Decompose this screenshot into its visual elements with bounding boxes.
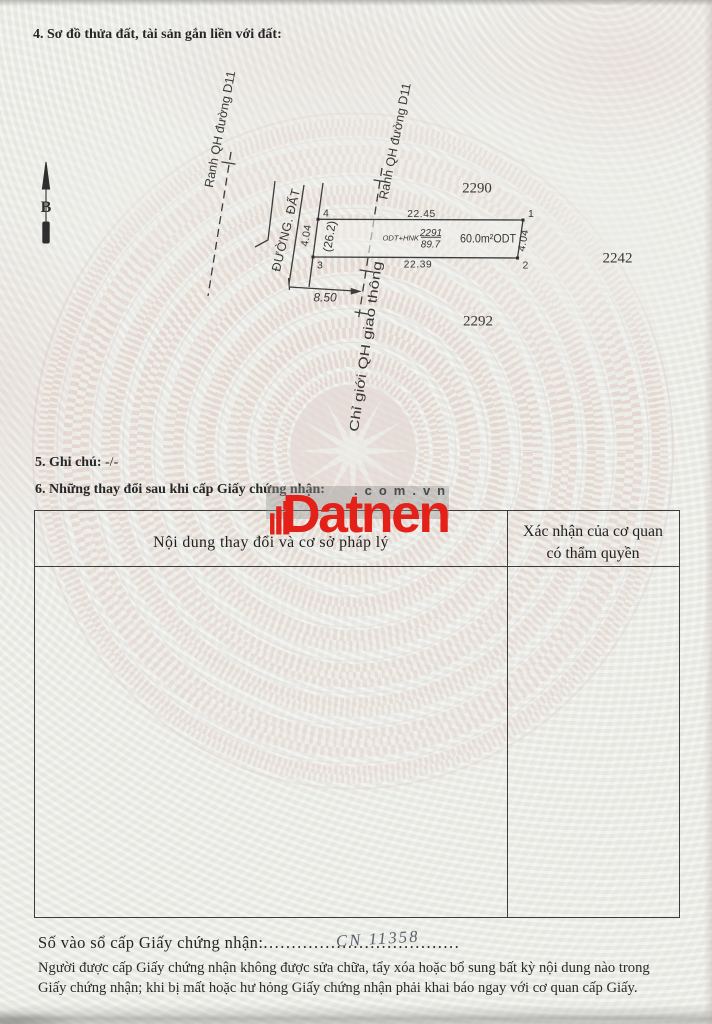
svg-text:1: 1 [528, 208, 534, 220]
svg-text:22.45: 22.45 [407, 209, 436, 220]
svg-text:2292: 2292 [463, 314, 493, 330]
svg-text:2290: 2290 [462, 181, 492, 197]
svg-text:22.39: 22.39 [404, 260, 433, 271]
svg-text:89.7: 89.7 [421, 240, 441, 251]
svg-text:3: 3 [317, 260, 323, 272]
svg-text:4.04: 4.04 [516, 229, 532, 253]
svg-text:2: 2 [523, 260, 529, 272]
svg-text:4.04: 4.04 [299, 224, 314, 248]
svg-text:ODT+HNK: ODT+HNK [383, 234, 420, 243]
svg-text:4: 4 [323, 208, 329, 220]
svg-text:Chỉ giới QH giao thông: Chỉ giới QH giao thông [346, 260, 385, 432]
svg-text:Ranh QH đường D11: Ranh QH đường D11 [202, 70, 238, 189]
svg-text:B: B [41, 199, 52, 216]
svg-text:8.50: 8.50 [313, 291, 337, 305]
svg-text:2242: 2242 [603, 251, 633, 267]
svg-text:Ranh QH đường D11: Ranh QH đường D11 [376, 82, 413, 201]
svg-text:60.0m²ODT: 60.0m²ODT [460, 232, 516, 246]
